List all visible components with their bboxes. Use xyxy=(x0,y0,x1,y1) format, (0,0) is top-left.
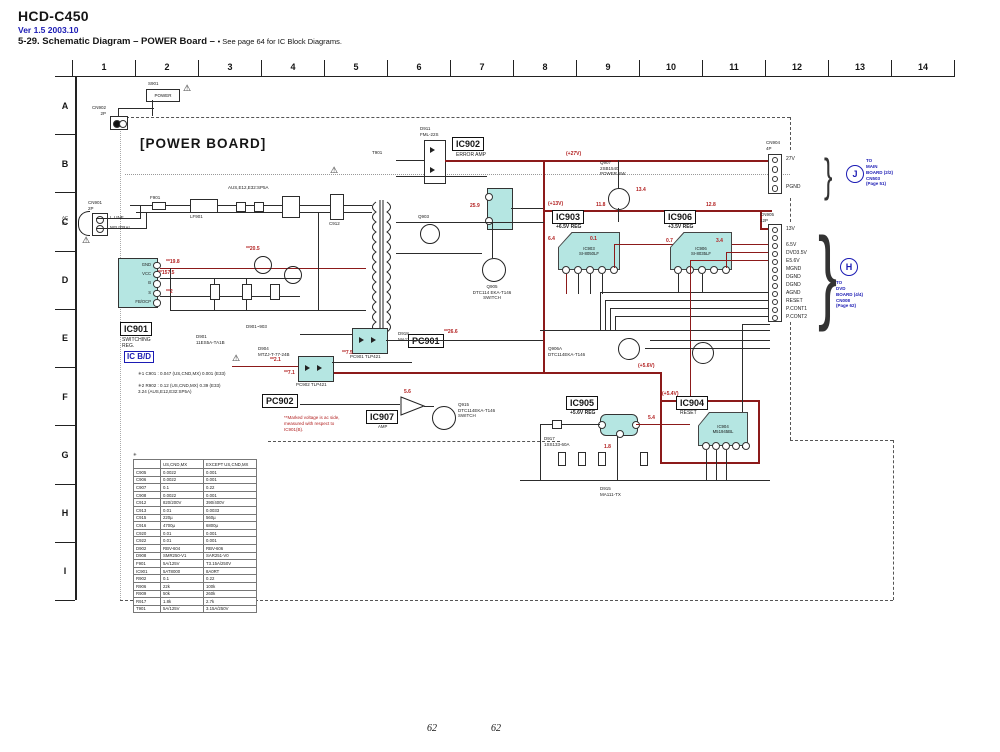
ic901-pin xyxy=(153,280,161,288)
connector-pin-label: P.CONT2 xyxy=(786,314,807,320)
connector-pin-row: P.CONT2 xyxy=(769,313,781,321)
ic907-opamp xyxy=(400,396,426,421)
board-outline xyxy=(893,440,894,600)
pc902-ref: PC902 xyxy=(262,394,298,408)
table-row: C913 0.01 0.0033 xyxy=(134,506,257,514)
resistor xyxy=(270,284,280,300)
ic905-chip xyxy=(600,414,638,436)
icbd-tag: IC B/D xyxy=(124,351,154,363)
connector-pin-label: E5.6V xyxy=(786,258,800,264)
ic902-ref: IC902 xyxy=(452,137,484,151)
ic904-pin xyxy=(742,442,750,450)
connector-pin xyxy=(772,185,779,192)
table-cell-except: 260k xyxy=(204,590,257,598)
table-cell-except: 0.22 xyxy=(204,575,257,583)
table-row: C905 0.0022 0.001 xyxy=(134,469,257,477)
ic901-pin xyxy=(153,290,161,298)
ic901-pin-label: FB/OCP xyxy=(135,299,151,304)
table-mark: ✳ xyxy=(133,452,137,458)
h-link-text: TODVDBOARD (4/4)CN008(Page 62) xyxy=(836,280,863,309)
board-inner-boundary xyxy=(125,174,790,175)
table-cell-ref: R917 xyxy=(134,598,161,606)
wire xyxy=(332,362,412,363)
wire-red xyxy=(660,400,758,402)
grid-row-label: B xyxy=(55,135,75,193)
transistor-q906 xyxy=(618,338,640,360)
table-cell-except: SAR251-V0 xyxy=(204,552,257,560)
d917-label: D917 1SS133-60A xyxy=(544,436,570,447)
grid-row-label: H xyxy=(55,485,75,543)
voltage-note: (+27V) xyxy=(566,151,581,157)
table-cell-except: 0.001 xyxy=(204,529,257,537)
q915-label: Q915 DTC114EKA-T146 SWITCH xyxy=(458,402,495,419)
version-label: Ver 1.5 2003.10 xyxy=(18,25,79,35)
table-cell-except: T3.15A/250V xyxy=(204,560,257,568)
wire xyxy=(618,208,619,222)
table-cell-us: RBV-604 xyxy=(161,544,204,552)
table-header: EXCEPT US,CND,MX xyxy=(204,460,257,469)
table-cell-ref: C922 xyxy=(134,537,161,545)
connector-pin-row: P.CONT1 xyxy=(769,305,781,313)
wire xyxy=(605,300,768,301)
table-row: R906 22k 100k xyxy=(134,582,257,590)
grid-column-label: 12 xyxy=(765,60,828,76)
ic906-pin xyxy=(674,266,682,274)
warning-icon: ⚠ xyxy=(330,166,338,175)
table-cell-us: 50k xyxy=(161,590,204,598)
grid-column-label: 3 xyxy=(198,60,261,76)
ic901-pin-row: VCC xyxy=(119,269,157,278)
voltage-note: (+5.4V) xyxy=(662,391,679,397)
ac-in-label: AC IN xyxy=(62,215,68,226)
wire xyxy=(678,274,679,292)
wire xyxy=(396,253,482,254)
f901-label: F901 xyxy=(150,195,160,201)
table-cell-except: 3.15A/250V xyxy=(204,605,257,613)
connector-pin-label: 6.5V xyxy=(786,242,796,248)
j-link-circle: J xyxy=(846,165,864,183)
cn904-connector: 27V PGND xyxy=(768,154,782,194)
capacitor-c912 xyxy=(330,194,344,220)
connector-pin-label: P.CONT1 xyxy=(786,306,807,312)
table-cell-us: 0.0022 xyxy=(161,469,204,477)
wire xyxy=(578,274,579,294)
table-cell-us: 1.8k xyxy=(161,598,204,606)
wire-red xyxy=(543,160,545,372)
fuse-variant-note: AUS,E12,E32:SP5A xyxy=(228,185,269,191)
cn905-label: CN905 12P xyxy=(760,212,774,223)
page-number-left: 62 xyxy=(427,723,437,734)
voltage-note: **2 xyxy=(166,289,173,295)
table-row: C907 0.1 0.22 xyxy=(134,484,257,492)
wire xyxy=(386,340,543,341)
table-cell-except: 6800µ xyxy=(204,522,257,530)
ic902-pin xyxy=(485,193,493,201)
table-row: R902 0.1 0.22 xyxy=(134,575,257,583)
connector-pin-label: MGND xyxy=(786,266,801,272)
rectifier-d911 xyxy=(424,140,446,184)
page-number-right: 62 xyxy=(491,723,501,734)
q906-label: Q906A DTC114EKA-T146 xyxy=(548,346,585,357)
ic903-function: +6.5V REG xyxy=(556,224,581,230)
table-row: C916 4700µ 6800µ xyxy=(134,522,257,530)
voltage-note: 5.6 xyxy=(404,389,411,395)
measurement-note: **Marked voltage is ac side, measured wi… xyxy=(284,415,340,433)
wire xyxy=(146,212,147,229)
wire xyxy=(396,160,425,161)
grid-column-label: 10 xyxy=(639,60,702,76)
ic904-pin xyxy=(732,442,740,450)
d901-label: D901 11ES5A-TA1B xyxy=(196,334,225,345)
table-cell-ref: F901 xyxy=(134,560,161,568)
voltage-note: **19.8 xyxy=(166,259,180,265)
connector-pin-label: DVD3.5V xyxy=(786,250,807,256)
wire xyxy=(160,278,161,279)
capacitor xyxy=(598,452,606,466)
table-cell-us: 5A/125V xyxy=(161,605,204,613)
connector-pin-row: 13V xyxy=(769,225,781,233)
wire-red xyxy=(690,260,691,400)
c912-label: C912 xyxy=(329,221,340,227)
ic904-pin xyxy=(722,442,730,450)
voltage-note: 5.4 xyxy=(648,415,655,421)
table-cell-except: RBV-606 xyxy=(204,544,257,552)
d911-label: D911 FML-22S xyxy=(420,126,439,137)
grid-column-label: 4 xyxy=(261,60,324,76)
ic904-ref: IC904 xyxy=(676,396,708,410)
wire xyxy=(96,218,140,219)
table-cell-us: 0.01 xyxy=(161,529,204,537)
voltage-note: **20.5 xyxy=(246,246,260,252)
connector-pin-row: 6.5V xyxy=(769,241,781,249)
cn901-connector xyxy=(92,213,108,236)
wire xyxy=(118,108,154,109)
table-row: R909 50k 260k xyxy=(134,590,257,598)
wire xyxy=(610,308,611,330)
voltage-note: 1.8 xyxy=(604,444,611,450)
q907-label: Q907 2SB1540 POWER SW xyxy=(600,160,626,177)
ic901-pin-label: VCC xyxy=(142,271,151,276)
table-row: F901 5A/125V T3.15A/250V xyxy=(134,560,257,568)
ic901-pin-row: FB/OCP xyxy=(119,298,157,307)
board-outline xyxy=(126,117,790,118)
table-cell-except: 0.22 xyxy=(204,484,257,492)
ic904-chip-label: IC904 M51945BL xyxy=(699,413,747,445)
grid-column-label: 8 xyxy=(513,60,576,76)
wire xyxy=(617,436,618,480)
voltage-note: 6.4 xyxy=(548,236,555,242)
connector-pin-row: DVD3.5V xyxy=(769,249,781,257)
warning-icon: ⚠ xyxy=(232,354,240,363)
ic906-ref: IC906 xyxy=(664,210,696,224)
voltage-note: **7.5 xyxy=(342,350,353,356)
ic907-ref: IC907 xyxy=(366,410,398,424)
q905-label: Q905 DTC114 EKA-T146 SWITCH xyxy=(462,284,522,301)
board-outline xyxy=(790,440,893,441)
wire-red-3v5 xyxy=(726,252,770,253)
table-row: D908 SMR250-V1 SAR251-V0 xyxy=(134,552,257,560)
table-cell-ref: C920 xyxy=(134,529,161,537)
table-cell-us: 0.01 xyxy=(161,537,204,545)
wire-red-e5v6 xyxy=(690,260,770,261)
grid-row-label: G xyxy=(55,426,75,484)
ic903-pin xyxy=(562,266,570,274)
grid-column-label: 14 xyxy=(891,60,955,76)
voltage-note: 0.7 xyxy=(666,238,673,244)
ic901-pin-label: B xyxy=(148,280,151,285)
table-row: D902 RBV-604 RBV-606 xyxy=(134,544,257,552)
table-row: C920 0.01 0.001 xyxy=(134,529,257,537)
connector-pin-row xyxy=(769,165,781,175)
connector-pin xyxy=(772,166,779,173)
brace: } xyxy=(824,148,832,202)
wire-red xyxy=(636,424,690,425)
warning-icon: ⚠ xyxy=(82,236,90,245)
ic901-pin-label: GND xyxy=(142,262,151,267)
ic902-function: ERROR AMP xyxy=(456,152,486,158)
grid-column-label: 9 xyxy=(576,60,639,76)
t901-label: T901 xyxy=(372,150,382,156)
fuse-f901 xyxy=(152,202,166,210)
table-cell-except: 100k xyxy=(204,582,257,590)
table-header xyxy=(134,460,161,469)
table-row: C912 820/200V 390/400V xyxy=(134,499,257,507)
wire xyxy=(160,278,300,279)
board-title: [POWER BOARD] xyxy=(140,136,266,151)
pc902-opto xyxy=(298,356,334,382)
table-cell-ref: R902 xyxy=(134,575,161,583)
ic903-chip-label: IC903 SI-8050LF xyxy=(559,233,619,269)
table-cell-except: 2.7k xyxy=(204,598,257,606)
ic905-ref: IC905 xyxy=(566,396,598,410)
ic901-pin-row: S xyxy=(119,288,157,297)
footnote-1: ✳1 C901 : 0.047 (US,CND,MX) 0.001 (E33) xyxy=(138,371,226,377)
wire xyxy=(615,316,768,317)
ic901-pin-row: B xyxy=(119,279,157,288)
wire-red xyxy=(660,462,760,464)
wire-red xyxy=(660,372,662,462)
table-cell-except: 0.0033 xyxy=(204,506,257,514)
voltage-note: 13.4 xyxy=(636,187,646,193)
j-link-text: TOMAINBOARD (2/2)CN503(Page 51) xyxy=(866,158,893,187)
connector-pin-row: E5.6V xyxy=(769,257,781,265)
h-link-circle: H xyxy=(840,258,858,276)
connector-pin-row: AGND xyxy=(769,289,781,297)
section-title-text: 5-29. Schematic Diagram – POWER Board – xyxy=(18,36,215,47)
lf901-label: LF901 xyxy=(190,214,203,220)
grid-column-label: 6 xyxy=(387,60,450,76)
transistor-q905 xyxy=(482,258,506,282)
voltage-note: **157.5 xyxy=(158,270,174,276)
table-cell-us: 0.1 xyxy=(161,484,204,492)
ic904-function: RESET xyxy=(680,410,697,416)
ic901-ref: IC901 xyxy=(120,322,152,336)
section-note: • See page 64 for IC Block Diagrams. xyxy=(218,37,342,46)
table-row: IC901 5AT8000 8A0RT xyxy=(134,567,257,575)
wire xyxy=(615,316,616,330)
capacitor xyxy=(254,202,264,212)
table-row: C922 0.01 0.001 xyxy=(134,537,257,545)
wire xyxy=(300,404,400,405)
wire-red xyxy=(566,274,567,294)
resistor xyxy=(242,284,252,300)
capacitor xyxy=(578,452,586,466)
ic901-pins: GND VCC B S FB/OCP xyxy=(119,260,157,307)
capacitor xyxy=(236,202,246,212)
table-cell-ref: C905 xyxy=(134,469,161,477)
wire xyxy=(590,274,591,294)
cn904-label: CN904 4P xyxy=(766,140,780,151)
table-cell-us: 0.01 xyxy=(161,506,204,514)
wire xyxy=(520,480,770,481)
board-divider xyxy=(268,441,560,442)
ic904-pin xyxy=(702,442,710,450)
wire xyxy=(170,310,366,311)
transistor xyxy=(284,266,302,284)
table-cell-except: 0.001 xyxy=(204,476,257,484)
voltage-note: (+5.6V) xyxy=(638,363,655,369)
cn902-connector xyxy=(110,116,128,130)
table-cell-ref: C907 xyxy=(134,484,161,492)
d904-label: D904 MTZJ-T-77-24B xyxy=(258,346,290,357)
ic901-pin-label: S xyxy=(148,290,151,295)
ic903-pin xyxy=(574,266,582,274)
table-cell-us: SMR250-V1 xyxy=(161,552,204,560)
connector-pin xyxy=(772,176,779,183)
connector-pin xyxy=(119,120,127,128)
connector-pin-label: 13V xyxy=(786,226,795,232)
table-cell-except: 560µ xyxy=(204,514,257,522)
wire xyxy=(610,308,768,309)
ic901-pin xyxy=(153,299,161,307)
wire xyxy=(702,274,703,292)
wire xyxy=(424,406,434,407)
table-cell-ref: D908 xyxy=(134,552,161,560)
table-cell-except: 0.001 xyxy=(204,469,257,477)
wire xyxy=(396,222,544,223)
ic903-chip: IC903 SI-8050LF xyxy=(558,232,620,270)
d915-label: D915 MA111-TX xyxy=(600,486,621,497)
warning-icon: ⚠ xyxy=(183,84,191,93)
wire xyxy=(318,212,319,310)
grid-column-label: 2 xyxy=(135,60,198,76)
voltage-note: (+13V) xyxy=(548,201,563,207)
table-cell-ref: D902 xyxy=(134,544,161,552)
grid-row-label: A xyxy=(55,77,75,135)
connector-pin-row: MGND xyxy=(769,265,781,273)
table-cell-us: 0.0022 xyxy=(161,476,204,484)
wire xyxy=(540,330,770,331)
line-filter-lf901 xyxy=(190,199,218,213)
wire xyxy=(396,176,487,177)
ic904-pin xyxy=(712,442,720,450)
wire xyxy=(602,274,603,294)
board-outline xyxy=(790,117,791,150)
wire xyxy=(600,292,768,293)
table-cell-ref: C913 xyxy=(134,506,161,514)
table-cell-except: 0.001 xyxy=(204,537,257,545)
resistor xyxy=(210,284,220,300)
board-outline xyxy=(790,198,791,222)
grid-row-label: D xyxy=(55,252,75,310)
table-cell-ref: R906 xyxy=(134,582,161,590)
wire xyxy=(600,292,601,330)
j-link-line: (Page 51) xyxy=(866,181,893,187)
ic906-pin xyxy=(698,266,706,274)
grid-columns: 1234567891011121314 xyxy=(72,60,955,77)
pc901-part: PC901 TLP421 xyxy=(350,354,381,360)
ic901-pin-row: GND xyxy=(119,260,157,269)
connector-pin-row: DGND xyxy=(769,281,781,289)
connector-pin-label: DGND xyxy=(786,274,801,280)
bridge-rectifier-d902 xyxy=(282,196,300,218)
board-outline xyxy=(790,322,791,440)
wire xyxy=(300,334,352,335)
d901-903-label: D901~903 xyxy=(246,324,267,330)
wire-red xyxy=(614,244,615,268)
connector-pin xyxy=(772,157,779,164)
ic903-pin xyxy=(598,266,606,274)
wire-red-5v6 xyxy=(300,372,660,374)
wire xyxy=(96,228,146,229)
table-row: C915 220µ 560µ xyxy=(134,514,257,522)
grid-column-label: 11 xyxy=(702,60,765,76)
ic901-function: SWITCHING REG. xyxy=(122,337,151,349)
table-cell-us: 0.0022 xyxy=(161,491,204,499)
brace: } xyxy=(818,216,837,335)
table-cell-us: 4700µ xyxy=(161,522,204,530)
table-cell-except: 390/400V xyxy=(204,499,257,507)
section-title: 5-29. Schematic Diagram – POWER Board – … xyxy=(18,36,342,47)
table-cell-ref: IC901 xyxy=(134,567,161,575)
table-cell-us: 820/200V xyxy=(161,499,204,507)
wire xyxy=(605,300,606,330)
connector-pin-label: DGND xyxy=(786,282,801,288)
capacitor xyxy=(640,452,648,466)
transistor-q903 xyxy=(420,224,440,244)
table-cell-us: 0.1 xyxy=(161,575,204,583)
table-cell-ref: C916 xyxy=(134,522,161,530)
wire xyxy=(618,160,619,188)
q903-label: Q903 xyxy=(418,214,429,220)
grid-column-label: 5 xyxy=(324,60,387,76)
schematic-page: HCD-C450 Ver 1.5 2003.10 5-29. Schematic… xyxy=(0,0,1000,752)
ic905-function: +5.6V REG xyxy=(570,410,595,416)
connector-pin-row: 27V xyxy=(769,155,781,165)
pc901-opto xyxy=(352,328,388,354)
table-cell-us: 5A/125V xyxy=(161,560,204,568)
wire xyxy=(650,340,770,341)
diode-d917 xyxy=(552,420,562,429)
grid-row-label: E xyxy=(55,310,75,368)
connector-pin-label: RESET xyxy=(786,298,803,304)
connector-pin-row xyxy=(769,233,781,241)
connector-pin-row xyxy=(769,174,781,184)
table-cell-ref: T901 xyxy=(134,605,161,613)
transistor xyxy=(254,256,272,274)
ic907-function: AMP xyxy=(378,424,387,429)
voltage-note: **7.1 xyxy=(284,370,295,376)
ic901-chip: GND VCC B S FB/OCP xyxy=(118,258,158,308)
ic902-chip xyxy=(487,188,513,230)
voltage-note: 11.8 xyxy=(596,202,605,208)
table-row: C906 0.0022 0.001 xyxy=(134,476,257,484)
table-cell-ref: C915 xyxy=(134,514,161,522)
wire-red xyxy=(232,366,298,367)
wire xyxy=(726,450,727,480)
connector-pin-label: AGND xyxy=(786,290,800,296)
table-cell-us: 5AT8000 xyxy=(161,567,204,575)
